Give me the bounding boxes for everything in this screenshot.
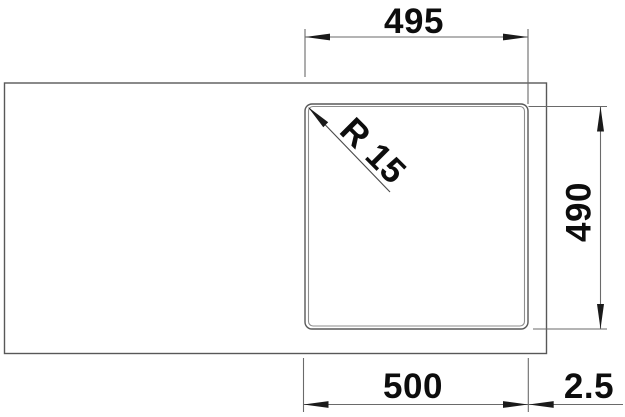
arrowhead-bottom-left-icon — [304, 401, 329, 408]
arrowhead-offset-icon — [529, 401, 554, 408]
dimension-label-bottom-width: 500 — [383, 369, 443, 404]
radius-arrowhead-icon — [308, 107, 328, 127]
worktop-outline — [5, 83, 547, 354]
dimension-label-right-height: 490 — [562, 182, 597, 242]
technical-drawing-canvas: 495 490 500 2.5 R 15 — [0, 0, 625, 417]
arrowhead-right-icon — [503, 34, 528, 41]
arrowhead-left-icon — [305, 34, 330, 41]
arrowhead-bottom-right-icon — [503, 401, 528, 408]
dimension-label-edge-offset: 2.5 — [564, 369, 614, 404]
arrowhead-up-icon — [597, 107, 604, 132]
arrowhead-down-icon — [597, 304, 604, 329]
sink-linework — [0, 0, 625, 417]
dimension-label-top-width: 495 — [384, 4, 444, 39]
